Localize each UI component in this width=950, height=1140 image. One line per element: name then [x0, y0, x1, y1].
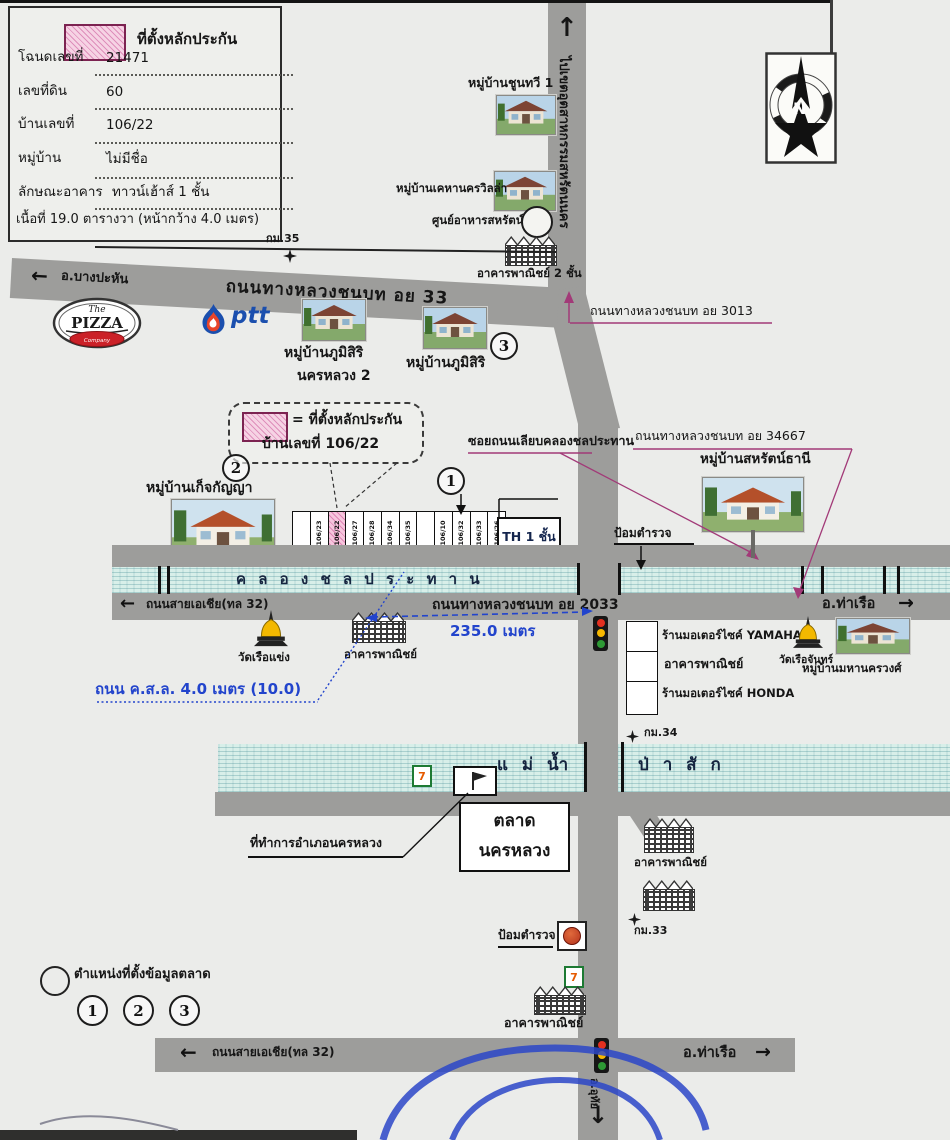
- km33-label: กม.33: [634, 925, 667, 938]
- highway-34667-label: ถนนทางหลวงชนบท อย 34667: [635, 429, 806, 443]
- village-label-phumisiri: หมู่บ้านภูมิสิริ: [406, 355, 485, 371]
- km34-cross-icon: [626, 728, 639, 741]
- arrow-left-icon: ←: [120, 593, 135, 614]
- legend-divider: [95, 74, 293, 76]
- arrow-right-icon: →: [898, 592, 914, 614]
- river-bridge-edge: [621, 742, 624, 793]
- pizza-company-text: Company: [84, 338, 111, 344]
- police-box-label: ป้อมตำรวจ: [498, 929, 555, 943]
- highway-3013-label: ถนนทางหลวงชนบท อย 3013: [590, 304, 753, 318]
- village-label-mahanakhon: หมู่บ้านมหานครวงศ์: [802, 662, 902, 675]
- commercial-building-icon: [643, 880, 693, 910]
- pizza-company-logo: The PIZZA Company: [52, 297, 142, 349]
- legend-row-value: 106/22: [106, 118, 154, 134]
- temple-icon-ruea-chan: [793, 616, 823, 652]
- map-point-3: 3: [490, 332, 518, 360]
- legend-divider: [95, 177, 293, 179]
- river-side-road: [215, 792, 950, 816]
- canal-divider: [821, 566, 824, 594]
- arrow-left-icon: ←: [180, 1040, 197, 1064]
- village-label-saharat-thani: หมู่บ้านสหรัตน์ธานี: [700, 452, 811, 468]
- honda-shop-label: ร้านมอเตอร์ไซค์ HONDA: [662, 687, 794, 700]
- food-center-circle: [521, 206, 553, 238]
- police-box-icon: [557, 921, 587, 951]
- village-photo-chunthawi: [496, 95, 556, 135]
- soi-canal-label: ซอยถนนเลียบคลองชลประทาน: [468, 434, 634, 448]
- distance-235m-label: 235.0 เมตร: [450, 623, 535, 640]
- ptt-logo: ptt: [200, 303, 280, 341]
- district-office-icon: [453, 766, 497, 796]
- asia-road-bottom-label: ถนนสายเอเชีย(ทล 32): [212, 1046, 334, 1060]
- canal-divider: [883, 566, 886, 594]
- yamaha-shop-box: [626, 621, 658, 653]
- compass-rose: N: [765, 52, 837, 164]
- yamaha-shop-label: ร้านมอเตอร์ไซค์ YAMAHA: [662, 629, 802, 642]
- asia-road-mid-label: ถนนสายเอเชีย(ทล 32): [146, 598, 268, 612]
- village-label-phumisiri2-line2: นครหลวง 2: [297, 368, 371, 384]
- river-bridge: [587, 744, 618, 792]
- canal-side-road: [112, 545, 950, 567]
- km33-cross-icon: [628, 911, 641, 924]
- legend-row-value: ไม่มีชื่อ: [106, 152, 148, 168]
- seven-eleven-icon: 7: [412, 765, 432, 787]
- collateral-callout-box: = ที่ตั้งหลักประกัน บ้านเลขที่ 106/22: [228, 402, 424, 464]
- commercial-label: อาคารพาณิชย์: [664, 657, 743, 671]
- traffic-light-icon: [593, 616, 608, 651]
- legend-area-line: เนื้อที่ 19.0 ตารางวา (หน้ากว้าง 4.0 เมต…: [16, 213, 259, 228]
- tha-ruea-bottom-label: อ.ท่าเรือ: [683, 1045, 736, 1062]
- canal-divider: [801, 566, 804, 594]
- commercial-label: อาคารพาณิชย์: [344, 648, 417, 661]
- market-data-label: ตำแหน่งที่ตั้งข้อมูลตลาด: [74, 968, 211, 983]
- bang-pahan-label: อ.บางปะหัน: [61, 270, 129, 289]
- page-top-border: [0, 0, 832, 3]
- legend-row-label: โฉนดเลขที่: [18, 50, 83, 66]
- canal-name-label: ค ล อ ง ช ล ป ร ะ ท า น: [236, 571, 480, 588]
- concrete-road-label: ถนน ค.ส.ล. 4.0 เมตร (10.0): [95, 681, 301, 698]
- temple-ruea-khaeng-label: วัดเรือแข่ง: [238, 651, 290, 664]
- village-label-chunthawi: หมู่บ้านชูนทวี 1: [468, 76, 553, 90]
- village-photo-phumisiri2: [302, 299, 366, 341]
- market-name-line2: นครหลวง: [461, 842, 568, 862]
- arrow-left-icon: ←: [30, 263, 48, 288]
- callout-line2: บ้านเลขที่ 106/22: [262, 436, 379, 452]
- canal-divider: [158, 566, 161, 594]
- map-point-1: 1: [437, 467, 465, 495]
- commercial-building-icon: [352, 612, 404, 642]
- village-photo-mahanakhon: [836, 618, 910, 654]
- market-box: ตลาด นครหลวง: [459, 802, 570, 872]
- village-label-phumisiri2-line1: หมู่บ้านภูมิสิริ: [284, 345, 363, 361]
- river-name-right: ป่ า สั ก: [638, 756, 721, 776]
- commercial-label: อาคารพาณิชย์: [634, 856, 707, 869]
- legend-row-label: บ้านเลขที่: [18, 117, 74, 133]
- arrow-up-icon: ↑: [556, 14, 578, 44]
- property-location-map: ที่ตั้งหลักประกัน โฉนดเลขที่ 21471 เลขที…: [0, 0, 950, 1140]
- commercial-2-floor-label: อาคารพาณิชย์ 2 ชั้น: [477, 267, 582, 280]
- page-right-border: [830, 0, 833, 58]
- legend-divider: [95, 208, 293, 210]
- market-name-line1: ตลาด: [461, 812, 568, 832]
- canal-bridge: [577, 563, 621, 595]
- village-photo-saharat-thani: [702, 477, 804, 532]
- legend-divider: [95, 108, 293, 110]
- townhouse-label: TH 1 ชั้น: [502, 527, 555, 547]
- km35-cross-icon: [283, 248, 297, 262]
- commercial-shop-box: [626, 651, 658, 683]
- arrow-right-icon: →: [755, 1041, 771, 1063]
- scan-edge-band: [0, 1130, 357, 1140]
- traffic-light-icon: [594, 1038, 609, 1073]
- compass-north-letter: N: [793, 99, 806, 118]
- village-photo-phumisiri: [423, 307, 487, 349]
- km34-label: กม.34: [644, 727, 677, 740]
- legend-row-label: หมู่บ้าน: [18, 151, 61, 167]
- legend-number-3: 3: [169, 995, 200, 1026]
- legend-row-label: เลขที่ดิน: [18, 84, 67, 100]
- legend-row-value: 21471: [106, 51, 149, 67]
- legend-swatch-label: ที่ตั้งหลักประกัน: [137, 31, 237, 48]
- river-name-left: แ ม่ น้ำ: [497, 756, 568, 776]
- industrial-estate-direction-label: ไปเขตอุตสาหกรรมสหรัตนนคร: [554, 56, 575, 228]
- map-point-2: 2: [222, 454, 250, 482]
- callout-line1: = ที่ตั้งหลักประกัน: [292, 412, 402, 428]
- district-office-label: ที่ทำการอำเภอนครหลวง: [250, 836, 382, 850]
- pizza-text: PIZZA: [71, 314, 123, 332]
- highway-2033-label: ถนนทางหลวงชนบท อย 2033: [432, 597, 619, 613]
- commercial-building-icon: [505, 236, 555, 265]
- food-center-label: ศูนย์อาหารสหรัตน์: [432, 214, 524, 227]
- legend-number-2: 2: [123, 995, 154, 1026]
- village-label-khehanakhon: หมู่บ้านเคหานครวิลล่า: [396, 182, 507, 195]
- canal-divider: [167, 566, 170, 594]
- ptt-text: ptt: [231, 303, 269, 329]
- seven-eleven-icon: 7: [564, 966, 584, 988]
- honda-shop-box: [626, 681, 658, 715]
- legend-number-1: 1: [77, 995, 108, 1026]
- legend-row-label: ลักษณะอาคาร: [18, 185, 103, 201]
- temple-icon-ruea-khaeng: [254, 610, 288, 650]
- legend-row-value: 60: [106, 85, 123, 101]
- commercial-building-icon: [534, 986, 584, 1014]
- arrow-down-icon: ↓: [588, 1102, 608, 1130]
- legend-row-value: ทาวน์เฮ้าส์ 1 ชั้น: [112, 185, 210, 201]
- commercial-label: อาคารพาณิชย์: [504, 1016, 583, 1030]
- legend-divider: [95, 142, 293, 144]
- canal-divider: [897, 566, 900, 594]
- market-data-circle: [40, 966, 70, 996]
- village-label-ketkanya: หมู่บ้านเก็จกัญญา: [146, 480, 252, 496]
- km35-label: กม.35: [266, 233, 299, 246]
- police-box-label: ป้อมตำรวจ: [614, 527, 671, 541]
- tha-ruea-mid-label: อ.ท่าเรือ: [822, 596, 875, 613]
- commercial-building-icon: [644, 818, 692, 852]
